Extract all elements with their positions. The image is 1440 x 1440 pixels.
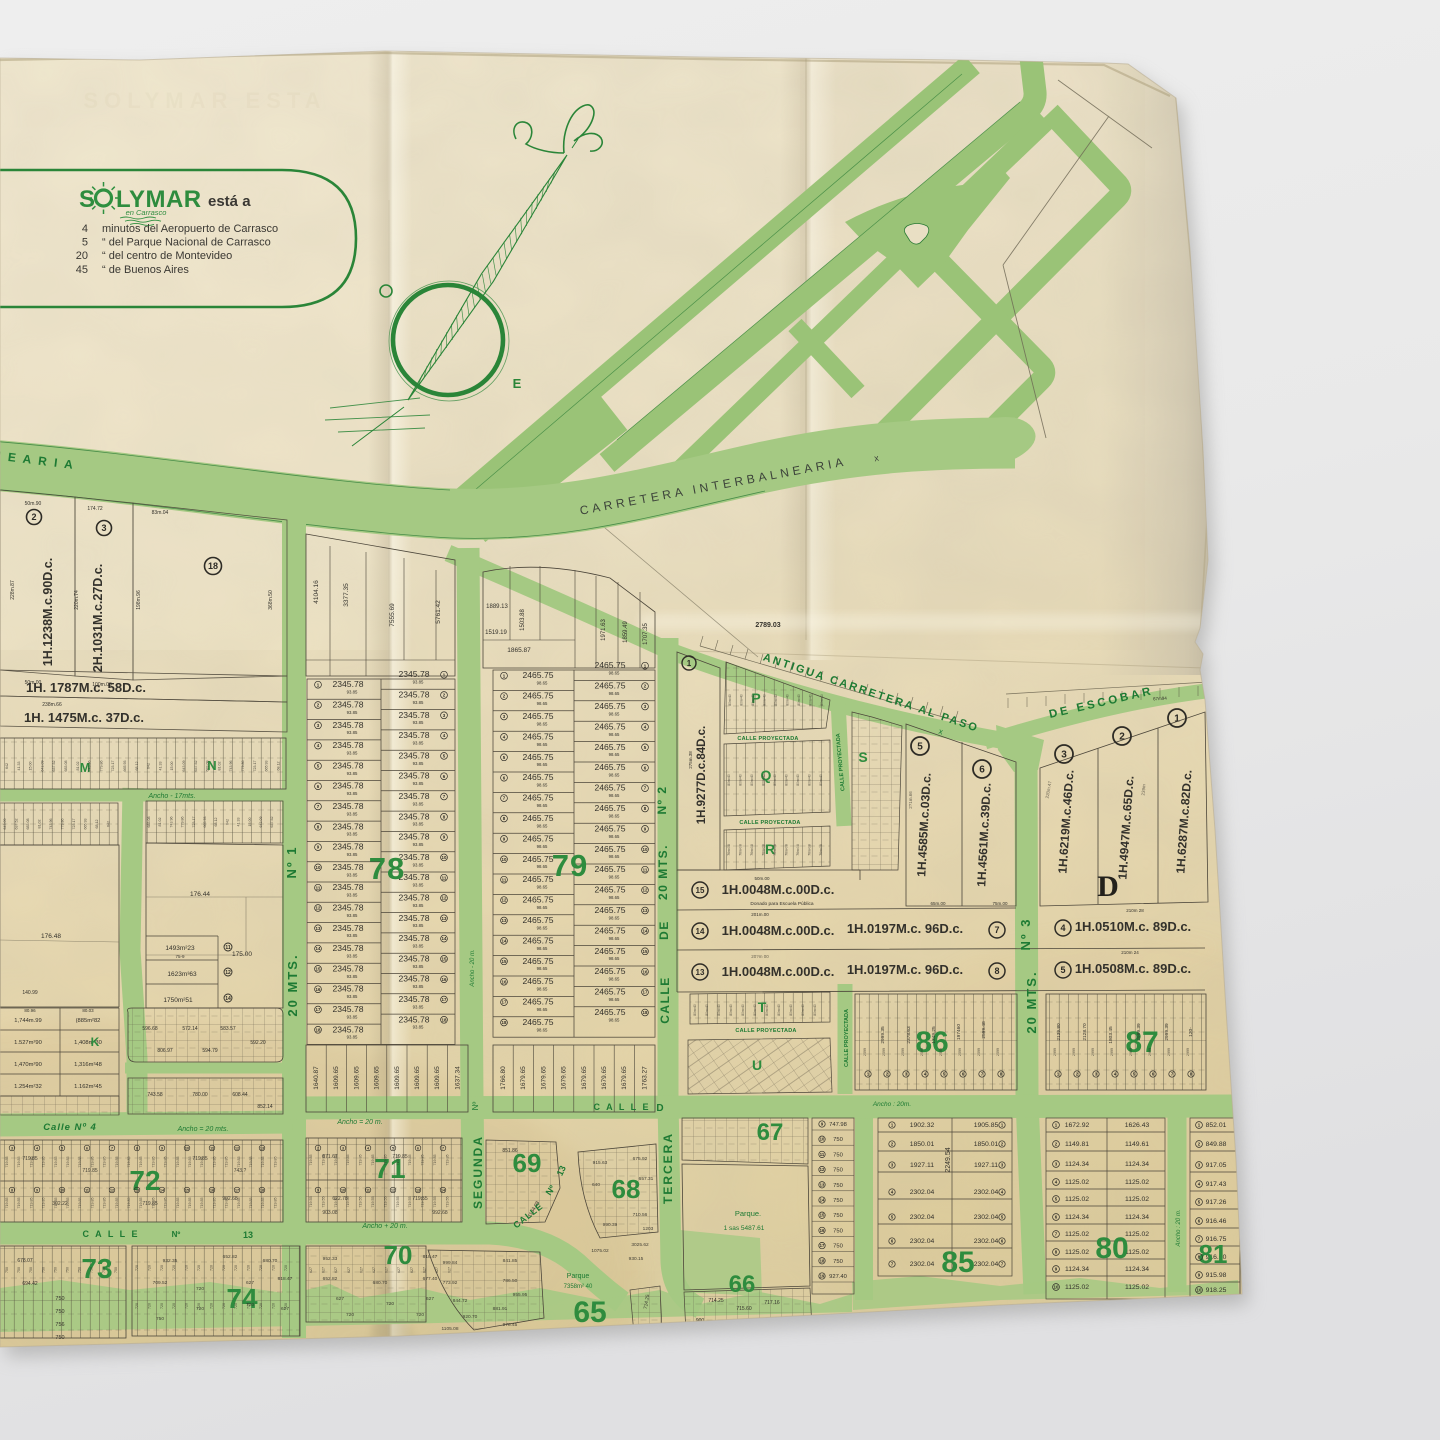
svg-text:C A L L E: C A L L E <box>593 1102 650 1112</box>
svg-text:637.52: 637.52 <box>15 819 19 830</box>
svg-text:2789.03: 2789.03 <box>755 622 780 629</box>
svg-text:2345.78: 2345.78 <box>398 953 429 963</box>
svg-text:720: 720 <box>259 1265 263 1271</box>
svg-text:79: 79 <box>552 848 588 883</box>
svg-text:80m²40: 80m²40 <box>705 1004 709 1016</box>
svg-text:K: K <box>91 1035 100 1049</box>
svg-text:675.92: 675.92 <box>633 1156 648 1162</box>
svg-text:719.85: 719.85 <box>321 1155 325 1166</box>
svg-text:93.85: 93.85 <box>347 1035 358 1040</box>
svg-text:719.85: 719.85 <box>66 1157 70 1168</box>
svg-text:1H.0197M.c. 96D.c.: 1H.0197M.c. 96D.c. <box>847 962 963 977</box>
svg-text:608.44: 608.44 <box>232 1092 248 1098</box>
svg-text:2345.78: 2345.78 <box>332 1004 363 1014</box>
svg-text:13: 13 <box>502 918 507 923</box>
svg-text:2345.78: 2345.78 <box>398 771 429 781</box>
svg-text:2599: 2599 <box>882 1048 886 1056</box>
svg-text:637.52: 637.52 <box>194 761 198 772</box>
svg-text:98.65: 98.65 <box>609 691 620 696</box>
svg-text:198m.96: 198m.96 <box>136 590 142 610</box>
svg-text:98.65: 98.65 <box>537 681 548 686</box>
svg-text:2345.78: 2345.78 <box>332 903 363 913</box>
svg-text:750: 750 <box>5 1267 9 1273</box>
svg-text:Ancho = 20 m.: Ancho = 20 m. <box>336 1119 382 1126</box>
svg-text:Nº 1: Nº 1 <box>284 846 299 879</box>
svg-text:1609.65: 1609.65 <box>394 1066 401 1090</box>
svg-text:750: 750 <box>66 1267 70 1273</box>
svg-text:643.09: 643.09 <box>182 761 186 772</box>
svg-text:5: 5 <box>61 1146 63 1150</box>
svg-text:2345.78: 2345.78 <box>332 882 363 892</box>
svg-text:9: 9 <box>36 1188 38 1192</box>
svg-text:2999: 2999 <box>1129 1048 1133 1056</box>
svg-text:750: 750 <box>102 1267 106 1273</box>
svg-text:743.?: 743.? <box>234 1168 247 1174</box>
svg-text:719.85: 719.85 <box>66 1198 70 1209</box>
svg-text:98.65: 98.65 <box>609 875 620 880</box>
svg-text:719.85: 719.85 <box>90 1157 94 1168</box>
svg-text:999.84: 999.84 <box>443 1260 458 1266</box>
svg-text:220m.74: 220m.74 <box>74 590 80 610</box>
svg-text:76m²08: 76m²08 <box>819 844 823 856</box>
svg-text:719.85: 719.85 <box>42 1157 46 1168</box>
svg-text:2465.75: 2465.75 <box>522 813 553 823</box>
svg-text:15: 15 <box>502 959 507 964</box>
svg-text:2345.78: 2345.78 <box>332 963 363 973</box>
svg-text:minutos del Aeropuerto de Carr: minutos del Aeropuerto de Carrasco <box>102 223 278 235</box>
svg-text:7: 7 <box>442 1146 444 1150</box>
svg-text:719.55: 719.55 <box>396 1197 400 1208</box>
svg-text:719.55: 719.55 <box>408 1197 412 1208</box>
svg-text:2465.75: 2465.75 <box>594 966 625 976</box>
svg-text:98.65: 98.65 <box>609 936 620 941</box>
svg-text:98.65: 98.65 <box>537 762 548 767</box>
svg-text:719.85: 719.85 <box>176 1157 180 1168</box>
svg-text:80m²40: 80m²40 <box>728 694 732 706</box>
svg-text:1125.02: 1125.02 <box>1065 1249 1089 1256</box>
svg-text:720: 720 <box>147 1265 151 1271</box>
svg-text:98.65: 98.65 <box>609 956 620 961</box>
svg-text:917.05: 917.05 <box>1206 1162 1227 1169</box>
svg-text:11: 11 <box>820 1152 825 1157</box>
svg-text:93.85: 93.85 <box>347 730 358 735</box>
svg-text:1905.85: 1905.85 <box>974 1122 999 1129</box>
svg-text:2302.04: 2302.04 <box>910 1261 935 1268</box>
svg-text:2599.48: 2599.48 <box>981 1021 987 1039</box>
svg-text:5: 5 <box>82 237 88 249</box>
svg-text:2999.35: 2999.35 <box>880 1026 886 1044</box>
svg-text:990.39: 990.39 <box>603 1222 618 1228</box>
svg-text:93.85: 93.85 <box>413 1025 424 1030</box>
svg-text:2H.1031M.c.27D.c.: 2H.1031M.c.27D.c. <box>91 564 105 672</box>
svg-text:E: E <box>513 376 522 391</box>
svg-text:2999: 2999 <box>1110 1048 1114 1056</box>
svg-text:1766.80: 1766.80 <box>500 1066 507 1090</box>
svg-text:694.42: 694.42 <box>22 1281 38 1287</box>
svg-text:93.85: 93.85 <box>413 680 424 685</box>
svg-text:2465.75: 2465.75 <box>522 976 553 986</box>
svg-text:719.85: 719.85 <box>273 1157 277 1168</box>
svg-text:76m²08: 76m²08 <box>796 844 800 856</box>
svg-text:98.65: 98.65 <box>537 844 548 849</box>
svg-text:719.85: 719.85 <box>164 1157 168 1168</box>
svg-text:592.20: 592.20 <box>250 1040 266 1046</box>
svg-text:1672.92: 1672.92 <box>1065 1122 1090 1129</box>
svg-text:80m²40: 80m²40 <box>763 694 767 706</box>
svg-text:1125.02: 1125.02 <box>1065 1284 1089 1291</box>
svg-text:955.95: 955.95 <box>513 1292 528 1298</box>
svg-text:80.96: 80.96 <box>24 1008 36 1013</box>
svg-text:3: 3 <box>1061 750 1067 761</box>
svg-text:Ancho - 17mts.: Ancho - 17mts. <box>147 793 195 800</box>
svg-text:197460: 197460 <box>956 1024 962 1040</box>
svg-text:16: 16 <box>502 979 507 984</box>
svg-text:719.85: 719.85 <box>200 1157 204 1168</box>
svg-text:2465.75: 2465.75 <box>594 783 625 793</box>
svg-text:2302.04: 2302.04 <box>910 1189 935 1196</box>
svg-text:80m²40: 80m²40 <box>739 774 743 786</box>
svg-text:93.85: 93.85 <box>347 974 358 979</box>
svg-text:2345.78: 2345.78 <box>398 690 429 700</box>
svg-text:16: 16 <box>820 1228 825 1233</box>
svg-text:81.02: 81.02 <box>217 762 221 771</box>
svg-text:SEGUNDA: SEGUNDA <box>471 1135 485 1209</box>
svg-text:916.46: 916.46 <box>1206 1218 1227 1225</box>
svg-text:881.91: 881.91 <box>493 1306 508 1312</box>
svg-text:3377.35: 3377.35 <box>343 583 350 607</box>
svg-text:2465.75: 2465.75 <box>522 711 553 721</box>
svg-text:1349.25: 1349.25 <box>931 1026 937 1044</box>
svg-text:80m²40: 80m²40 <box>785 774 789 786</box>
svg-text:720: 720 <box>160 1265 164 1271</box>
svg-text:1125.02: 1125.02 <box>1065 1179 1089 1186</box>
svg-text:750: 750 <box>833 1228 843 1234</box>
svg-text:2599: 2599 <box>863 1048 867 1056</box>
svg-text:93.85: 93.85 <box>413 923 424 928</box>
svg-text:1609.65: 1609.65 <box>414 1066 421 1090</box>
svg-text:680.70: 680.70 <box>373 1280 388 1286</box>
svg-text:81.02: 81.02 <box>158 818 162 827</box>
svg-text:Ancho : 20 m.: Ancho : 20 m. <box>1176 1209 1182 1247</box>
svg-text:714.25: 714.25 <box>708 1298 724 1304</box>
svg-text:719.85: 719.85 <box>408 1155 412 1166</box>
svg-text:627: 627 <box>372 1267 376 1273</box>
svg-text:719.85: 719.85 <box>225 1157 229 1168</box>
svg-text:719.85: 719.85 <box>212 1157 216 1168</box>
svg-text:74: 74 <box>226 1283 258 1314</box>
svg-text:1H. 1475M.c. 37D.c.: 1H. 1475M.c. 37D.c. <box>24 710 144 725</box>
svg-text:80: 80 <box>1095 1232 1128 1265</box>
svg-text:1H.0197M.c. 96D.c.: 1H.0197M.c. 96D.c. <box>847 921 963 936</box>
svg-text:2345.78: 2345.78 <box>332 923 363 933</box>
svg-text:2999: 2999 <box>1148 1048 1152 1056</box>
svg-text:98.65: 98.65 <box>609 773 620 778</box>
svg-text:20 MTS.: 20 MTS. <box>1024 970 1039 1033</box>
svg-text:80m²40: 80m²40 <box>740 694 744 706</box>
svg-text:1889.13: 1889.13 <box>486 604 508 610</box>
svg-text:719.55: 719.55 <box>321 1197 325 1208</box>
svg-text:67m94: 67m94 <box>1153 696 1167 702</box>
svg-text:779.86: 779.86 <box>99 761 103 772</box>
svg-text:7358m² 40: 7358m² 40 <box>564 1284 593 1290</box>
svg-text:1124.34: 1124.34 <box>1125 1266 1149 1273</box>
svg-text:2465.75: 2465.75 <box>594 946 625 956</box>
svg-text:2465.75: 2465.75 <box>594 681 625 691</box>
svg-text:1679.65: 1679.65 <box>621 1066 628 1090</box>
svg-text:1H.9277D.c.84D.c.: 1H.9277D.c.84D.c. <box>696 726 708 824</box>
svg-text:1.527m²90: 1.527m²90 <box>14 1040 42 1046</box>
svg-text:Nº 2: Nº 2 <box>655 785 669 814</box>
svg-text:80m²40: 80m²40 <box>729 1004 733 1016</box>
svg-text:719.85: 719.85 <box>115 1157 119 1168</box>
svg-text:10: 10 <box>1197 1288 1202 1293</box>
svg-text:719.85: 719.85 <box>445 1155 449 1166</box>
svg-text:93.85: 93.85 <box>347 811 358 816</box>
svg-text:80m²40: 80m²40 <box>819 774 823 786</box>
svg-text:720: 720 <box>196 1286 204 1292</box>
svg-text:67: 67 <box>757 1119 784 1146</box>
svg-text:20?m 00: 20?m 00 <box>751 954 769 959</box>
svg-text:2465.75: 2465.75 <box>522 956 553 966</box>
svg-text:720: 720 <box>209 1303 213 1309</box>
svg-text:952.33: 952.33 <box>323 1256 338 1262</box>
svg-text:2465.75: 2465.75 <box>522 731 553 741</box>
svg-text:1H.0048M.c.00D.c.: 1H.0048M.c.00D.c. <box>722 882 835 897</box>
svg-text:642: 642 <box>107 821 111 827</box>
svg-text:1,744m.99: 1,744m.99 <box>14 1018 41 1024</box>
svg-text:13: 13 <box>316 926 321 931</box>
svg-text:1H.1238M.c.90D.c.: 1H.1238M.c.90D.c. <box>41 558 55 666</box>
svg-text:1637.34: 1637.34 <box>454 1066 461 1090</box>
svg-text:50m.00: 50m.00 <box>754 876 770 881</box>
svg-text:93.85: 93.85 <box>347 852 358 857</box>
svg-text:680.70: 680.70 <box>263 1258 278 1264</box>
svg-text:73: 73 <box>81 1253 112 1284</box>
svg-text:720: 720 <box>209 1265 213 1271</box>
svg-text:93.85: 93.85 <box>413 741 424 746</box>
svg-text:2302.04: 2302.04 <box>974 1214 999 1221</box>
svg-text:717.16: 717.16 <box>764 1300 780 1306</box>
svg-text:719.85: 719.85 <box>127 1198 131 1209</box>
svg-text:en Carrasco: en Carrasco <box>126 208 167 217</box>
svg-text:719.55: 719.55 <box>383 1197 387 1208</box>
svg-text:915.63: 915.63 <box>593 1160 608 1166</box>
svg-text:720: 720 <box>234 1265 238 1271</box>
svg-text:2345.78: 2345.78 <box>332 740 363 750</box>
svg-text:2345.78: 2345.78 <box>398 832 429 842</box>
svg-text:750: 750 <box>55 1309 64 1315</box>
svg-text:2345.78: 2345.78 <box>332 862 363 872</box>
svg-text:(885m²82: (885m²82 <box>76 1018 101 1024</box>
svg-text:98.65: 98.65 <box>537 1027 548 1032</box>
svg-text:2465.75: 2465.75 <box>594 1007 625 1017</box>
svg-text:93.85: 93.85 <box>347 954 358 959</box>
svg-text:93.85: 93.85 <box>347 1014 358 1019</box>
svg-text:627: 627 <box>448 1267 452 1273</box>
svg-text:806.97: 806.97 <box>157 1048 173 1054</box>
svg-text:1 sas 5487.61: 1 sas 5487.61 <box>724 1225 765 1232</box>
svg-text:2?1m.66: 2?1m.66 <box>908 791 913 809</box>
svg-text:719.85: 719.85 <box>237 1157 241 1168</box>
svg-text:18: 18 <box>502 1020 507 1025</box>
svg-text:596.68: 596.68 <box>142 1026 158 1032</box>
svg-text:756: 756 <box>55 1322 64 1328</box>
svg-text:68.12: 68.12 <box>276 762 280 771</box>
svg-text:11: 11 <box>85 1188 89 1192</box>
svg-text:174.72: 174.72 <box>87 506 103 512</box>
svg-text:2302.04: 2302.04 <box>974 1189 999 1196</box>
svg-text:9: 9 <box>317 1188 319 1192</box>
svg-text:5761.42: 5761.42 <box>435 600 442 624</box>
svg-text:719.85: 719.85 <box>421 1155 425 1166</box>
svg-text:719.85: 719.85 <box>249 1157 253 1168</box>
svg-text:750: 750 <box>90 1267 94 1273</box>
svg-text:627: 627 <box>359 1267 363 1273</box>
svg-text:2345.78: 2345.78 <box>332 943 363 953</box>
svg-text:98.65: 98.65 <box>537 803 548 808</box>
svg-text:76m²08: 76m²08 <box>762 844 766 856</box>
svg-text:98.65: 98.65 <box>537 987 548 992</box>
svg-text:750: 750 <box>55 1335 64 1341</box>
svg-text:2345.78: 2345.78 <box>332 720 363 730</box>
svg-text:98.65: 98.65 <box>537 966 548 971</box>
svg-text:D: D <box>1097 870 1119 903</box>
svg-text:1125.02: 1125.02 <box>1065 1196 1089 1203</box>
svg-text:750: 750 <box>833 1213 843 1219</box>
svg-text:719.85: 719.85 <box>346 1155 350 1166</box>
svg-text:665.93: 665.93 <box>203 817 207 828</box>
svg-text:“ de Buenos Aires: “ de Buenos Aires <box>102 264 189 276</box>
svg-text:14: 14 <box>160 1188 164 1192</box>
svg-text:6: 6 <box>86 1146 88 1150</box>
svg-text:93.85: 93.85 <box>347 710 358 715</box>
svg-text:93.85: 93.85 <box>347 832 358 837</box>
svg-text:15.00: 15.00 <box>29 762 33 771</box>
svg-text:1125.02: 1125.02 <box>1125 1196 1149 1203</box>
svg-text:2345.78: 2345.78 <box>398 669 429 679</box>
svg-text:719.85: 719.85 <box>103 1157 107 1168</box>
svg-text:17: 17 <box>643 990 648 995</box>
svg-text:14: 14 <box>225 996 231 1002</box>
svg-text:7555.69: 7555.69 <box>389 603 396 627</box>
svg-text:719.85: 719.85 <box>142 1201 158 1207</box>
svg-text:637.52: 637.52 <box>52 761 56 772</box>
svg-text:2999.39: 2999.39 <box>1164 1023 1170 1041</box>
svg-text:98.65: 98.65 <box>537 742 548 747</box>
svg-text:98.65: 98.65 <box>537 946 548 951</box>
svg-text:98.65: 98.65 <box>609 813 620 818</box>
svg-text:Parque.: Parque. <box>735 1209 761 1218</box>
svg-text:643.09: 643.09 <box>40 761 44 772</box>
svg-text:93.85: 93.85 <box>413 842 424 847</box>
svg-text:720: 720 <box>185 1303 189 1309</box>
svg-text:Nº 3: Nº 3 <box>1018 918 1033 951</box>
svg-text:2345.78: 2345.78 <box>398 994 429 1004</box>
svg-text:2465.75: 2465.75 <box>522 772 553 782</box>
svg-text:CALLE PROYECTADA: CALLE PROYECTADA <box>737 736 798 742</box>
svg-text:4: 4 <box>367 1146 369 1150</box>
svg-text:719.55: 719.55 <box>309 1197 313 1208</box>
svg-text:8: 8 <box>994 966 999 976</box>
svg-text:80m²40: 80m²40 <box>741 1004 745 1016</box>
svg-text:76m²08: 76m²08 <box>773 844 777 856</box>
svg-text:81: 81 <box>1199 1239 1228 1269</box>
svg-text:719.85: 719.85 <box>139 1198 143 1209</box>
svg-text:723.17: 723.17 <box>253 761 257 772</box>
svg-text:14: 14 <box>696 927 705 936</box>
svg-text:719.85: 719.85 <box>334 1155 338 1166</box>
svg-text:2999.39: 2999.39 <box>1136 1023 1142 1041</box>
svg-text:15.00: 15.00 <box>170 762 174 771</box>
svg-text:2345.78: 2345.78 <box>398 710 429 720</box>
svg-text:1927.11: 1927.11 <box>974 1162 998 1169</box>
svg-text:719.85: 719.85 <box>225 1198 229 1209</box>
svg-text:2465.75: 2465.75 <box>522 1017 553 1027</box>
svg-text:10: 10 <box>60 1188 64 1192</box>
svg-text:3: 3 <box>101 523 106 533</box>
svg-text:627: 627 <box>322 1267 326 1273</box>
svg-text:1125.02: 1125.02 <box>1125 1284 1149 1291</box>
svg-text:80m²40: 80m²40 <box>809 694 813 706</box>
svg-text:917.43: 917.43 <box>1206 1181 1227 1188</box>
svg-text:1609.65: 1609.65 <box>353 1066 360 1090</box>
svg-text:2345.78: 2345.78 <box>332 984 363 994</box>
svg-text:1H.0510M.c. 89D.c.: 1H.0510M.c. 89D.c. <box>1075 919 1191 934</box>
svg-text:16: 16 <box>643 969 648 974</box>
svg-text:S: S <box>858 749 867 765</box>
svg-text:2345.78: 2345.78 <box>398 933 429 943</box>
svg-text:719.85: 719.85 <box>151 1198 155 1209</box>
svg-text:15: 15 <box>643 949 648 954</box>
svg-text:4: 4 <box>82 223 88 235</box>
svg-text:15.00: 15.00 <box>248 818 252 827</box>
svg-text:1927.11: 1927.11 <box>910 1162 934 1169</box>
svg-text:852.01: 852.01 <box>1206 1122 1227 1129</box>
svg-text:2345.78: 2345.78 <box>398 750 429 760</box>
svg-text:2465.75: 2465.75 <box>594 660 625 670</box>
svg-text:677.40: 677.40 <box>423 1276 438 1282</box>
svg-text:1519.19: 1519.19 <box>485 630 507 636</box>
svg-text:719.85: 719.85 <box>90 1198 94 1209</box>
svg-text:627: 627 <box>435 1267 439 1273</box>
svg-text:2599: 2599 <box>901 1048 905 1056</box>
svg-text:1203: 1203 <box>643 1226 654 1232</box>
svg-text:98.65: 98.65 <box>537 701 548 706</box>
svg-text:1750m²51: 1750m²51 <box>163 997 193 1004</box>
svg-text:12: 12 <box>643 888 648 893</box>
svg-text:720: 720 <box>135 1265 139 1271</box>
svg-text:719.55: 719.55 <box>445 1197 449 1208</box>
svg-text:1149.81: 1149.81 <box>1065 1141 1089 1148</box>
svg-text:2465.75: 2465.75 <box>522 833 553 843</box>
svg-text:2999: 2999 <box>1167 1048 1171 1056</box>
svg-text:10: 10 <box>820 1137 825 1142</box>
svg-text:140.99: 140.99 <box>22 990 38 996</box>
svg-text:719.85: 719.85 <box>29 1198 33 1209</box>
svg-text:68: 68 <box>612 1174 641 1204</box>
svg-text:719.85: 719.85 <box>5 1157 9 1168</box>
svg-text:93.85: 93.85 <box>413 1004 424 1009</box>
svg-text:98.65: 98.65 <box>609 793 620 798</box>
svg-text:747.98: 747.98 <box>829 1122 847 1128</box>
svg-text:720: 720 <box>222 1265 226 1271</box>
svg-text:1679.65: 1679.65 <box>601 1066 608 1090</box>
svg-text:CALLE PROYECTADA: CALLE PROYECTADA <box>844 1009 850 1067</box>
svg-text:17: 17 <box>502 1000 507 1005</box>
svg-text:1124.34: 1124.34 <box>1065 1161 1089 1168</box>
svg-text:643.09: 643.09 <box>3 819 7 830</box>
svg-text:238m.66: 238m.66 <box>42 702 62 708</box>
